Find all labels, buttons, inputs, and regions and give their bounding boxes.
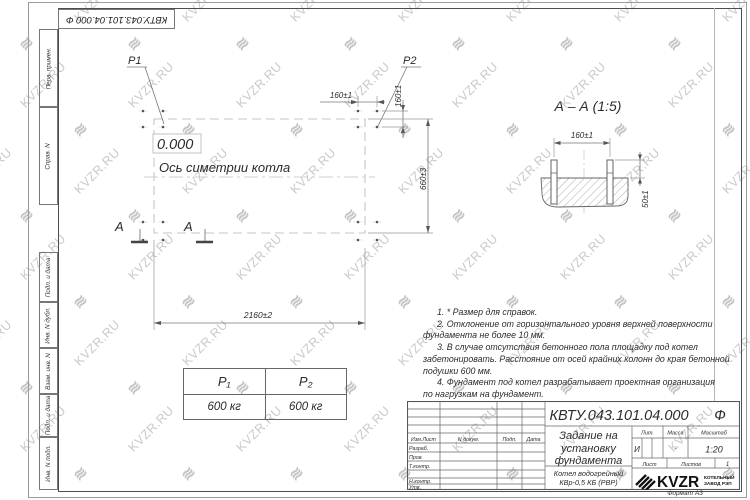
bolt-center-marks: [138, 111, 382, 240]
tb-scale-value: 1:20: [705, 445, 723, 455]
tb-masshtab-label: Масштаб: [701, 431, 728, 437]
tb-col-data: Дата: [526, 437, 541, 443]
kvzr-logo-text: KVZR: [657, 474, 699, 490]
note-line: забетонировать. Расстояние от осей крайн…: [423, 354, 745, 366]
load-table-p1-header: P₁: [218, 374, 231, 389]
plan-view: P1 P2 0.000 Ось симетрии котла 160±1 160…: [114, 55, 433, 330]
tb-lit-value: И: [634, 445, 640, 454]
dim-arrow: [154, 321, 161, 325]
tb-row-prov: Пров.: [409, 455, 423, 461]
tb-massa-value: -: [674, 444, 677, 453]
dim-arrow: [638, 155, 642, 161]
dim-arrow: [358, 321, 365, 325]
tb-listov-label: Листов: [680, 462, 701, 468]
drawing-sheet: KVZR.RU≋KVZR.RU≋KVZR.RU≋KVZR.RU≋KVZR.RU≋…: [0, 0, 750, 500]
anchor-bolt-dots: [142, 110, 379, 242]
dim-arrow: [604, 141, 611, 145]
note-line: фундамента не более 10 мм.: [423, 330, 745, 342]
note-line: 3. В случае отсутствия бетонного пола пл…: [423, 342, 745, 354]
load-table-p2-value: 600 кг: [289, 401, 322, 413]
dim-ext-lines: [554, 138, 610, 157]
elevation-value: 0.000: [157, 137, 193, 153]
section-letter-left: А: [114, 219, 124, 234]
dim-arrow: [554, 141, 561, 145]
note-line: 4. Фундамент под котел разрабатывает про…: [423, 377, 745, 389]
tb-lit-label: Лит.: [640, 431, 654, 437]
tb-row-razrab: Разраб.: [409, 446, 428, 452]
anchor-bolt-right: [607, 160, 613, 204]
tb-row-utv: Утв.: [409, 485, 421, 490]
tb-product-line: КВр-0,5 КБ (РВР): [559, 478, 617, 487]
note-line: по нагрузкам на фундамент.: [423, 389, 745, 401]
tb-row-t-kontr: Т.контр.: [409, 464, 430, 470]
dim-160-side: 160±1: [394, 85, 403, 107]
dim-ext-lines: [615, 160, 645, 178]
tb-listov-value: 1: [726, 462, 729, 468]
kvzr-logo-caption-1: КОТЕЛЬНЫЙ: [704, 473, 735, 480]
dim-2160: 2160±2: [243, 310, 273, 320]
dim-arrow: [426, 119, 430, 126]
dim-arrow: [377, 100, 384, 104]
load-point-p2-label: P2: [403, 55, 416, 67]
section-title: А – А (1:5): [554, 98, 622, 114]
dim-50: 50±1: [641, 190, 650, 208]
axis-label: Ось симетрии котла: [159, 160, 290, 175]
dim-160-section: 160±1: [571, 131, 593, 140]
load-table-value-row: 600 кг 600 кг: [184, 395, 346, 420]
kvzr-logo-icon: [636, 475, 655, 490]
tb-col-podp: Подп.: [502, 437, 516, 443]
load-table-p2-header: P₂: [299, 374, 313, 389]
tb-title-line: Задание на: [559, 430, 618, 442]
tb-product-line: Котел водогрейный: [554, 469, 623, 478]
dim-arrow: [401, 127, 405, 133]
dim-arrow: [638, 178, 642, 184]
load-point-p1-label: P1: [128, 55, 141, 67]
dim-arrow: [351, 100, 358, 104]
tb-doc-number: КВТУ.043.101.04.000: [549, 408, 688, 424]
load-table-header-row: P₁ P₂: [184, 369, 346, 395]
note-line: подушки 600 мм.: [423, 366, 745, 378]
section-letter-right: А: [183, 219, 193, 234]
dim-160-top: 160±1: [330, 91, 352, 100]
tb-col-izm-list: Изм.Лист: [411, 437, 437, 443]
tb-col-n-dokum: N докум.: [458, 437, 479, 443]
dim-arrow: [426, 226, 430, 233]
load-table: P₁ P₂ 600 кг 600 кг: [183, 368, 347, 420]
tb-title-line: установку: [560, 443, 617, 455]
format-label: Формат А3: [615, 490, 750, 497]
tb-doc-suffix: Ф: [714, 408, 726, 424]
section-view: А – А (1:5) 160±1 50±1: [541, 98, 650, 213]
title-block: Изм.Лист N докум. Подп. Дата Разраб. Про…: [407, 401, 740, 490]
tb-list-label: Лист: [641, 462, 657, 468]
kvzr-logo-caption-2: ЗАВОД РЭП: [704, 481, 732, 486]
dim-660: 660±3: [419, 167, 428, 190]
note-line: 2. Отклонение от горизонтального уровня …: [423, 319, 745, 331]
dim-ext-lines: [358, 96, 377, 107]
note-line: 1. * Размер для справок.: [423, 307, 745, 319]
tb-massa-label: Масса: [667, 431, 683, 437]
tb-title-line: фундамента: [555, 455, 623, 467]
technical-notes: 1. * Размер для справок. 2. Отклонение о…: [423, 307, 745, 401]
anchor-bolt-left: [551, 160, 557, 204]
load-table-p1-value: 600 кг: [208, 401, 241, 413]
